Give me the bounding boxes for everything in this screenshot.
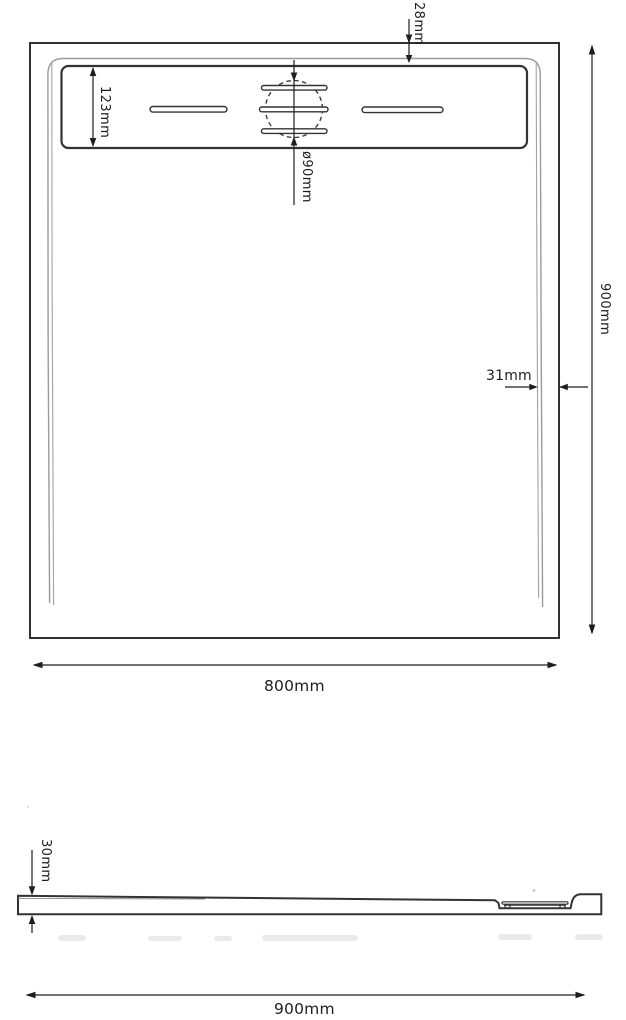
dim-label-900mm-top-view: 900mm xyxy=(596,283,611,335)
dim-label-900mm-side-view: 900mm xyxy=(274,1001,335,1019)
dim-900mm-top-view xyxy=(589,45,596,635)
arrowhead-left-icon xyxy=(26,992,36,999)
side-view-dimensions xyxy=(26,850,586,998)
arrowhead-up-icon xyxy=(29,915,36,924)
arrowhead-down-icon xyxy=(29,886,36,895)
side-view xyxy=(18,806,603,941)
dim-label-123mm: 123mm xyxy=(96,86,111,138)
profile-top-edge-line xyxy=(18,898,205,899)
dim-31mm xyxy=(505,384,588,391)
dim-label-28mm: 28mm xyxy=(410,2,425,45)
dim-label-30mm: 30mm xyxy=(37,839,52,882)
dim-30mm xyxy=(29,850,36,933)
profile-drain-cover xyxy=(502,902,568,908)
profile-cover-foot-right xyxy=(560,905,565,908)
profile-cover-plate xyxy=(502,902,568,904)
dim-label-31mm: 31mm xyxy=(486,368,532,384)
dim-label-drain-diameter: ø90mm xyxy=(298,151,313,203)
drain-slot-right xyxy=(362,107,443,113)
arrowhead-down-icon xyxy=(589,625,596,635)
arrowhead-right-icon xyxy=(576,992,586,999)
dim-label-800mm: 800mm xyxy=(264,678,325,696)
floor-slope-line-right xyxy=(536,63,538,598)
arrowhead-left-icon xyxy=(33,662,43,669)
arrowhead-right-icon xyxy=(529,384,538,391)
dim-900mm-side-view xyxy=(26,992,586,999)
arrowhead-left-icon xyxy=(559,384,568,391)
arrowhead-right-icon xyxy=(548,662,558,669)
profile-cover-foot-left xyxy=(505,905,510,908)
scan-artifacts xyxy=(27,806,603,941)
drain-slot-left xyxy=(150,107,227,113)
technical-drawing: 28mm 123mm ø90mm 900mm 31mm 800mm 30mm 9… xyxy=(0,0,626,1020)
floor-slope-line-left xyxy=(52,63,54,605)
dim-800mm xyxy=(33,662,558,669)
arrowhead-up-icon xyxy=(589,45,596,55)
